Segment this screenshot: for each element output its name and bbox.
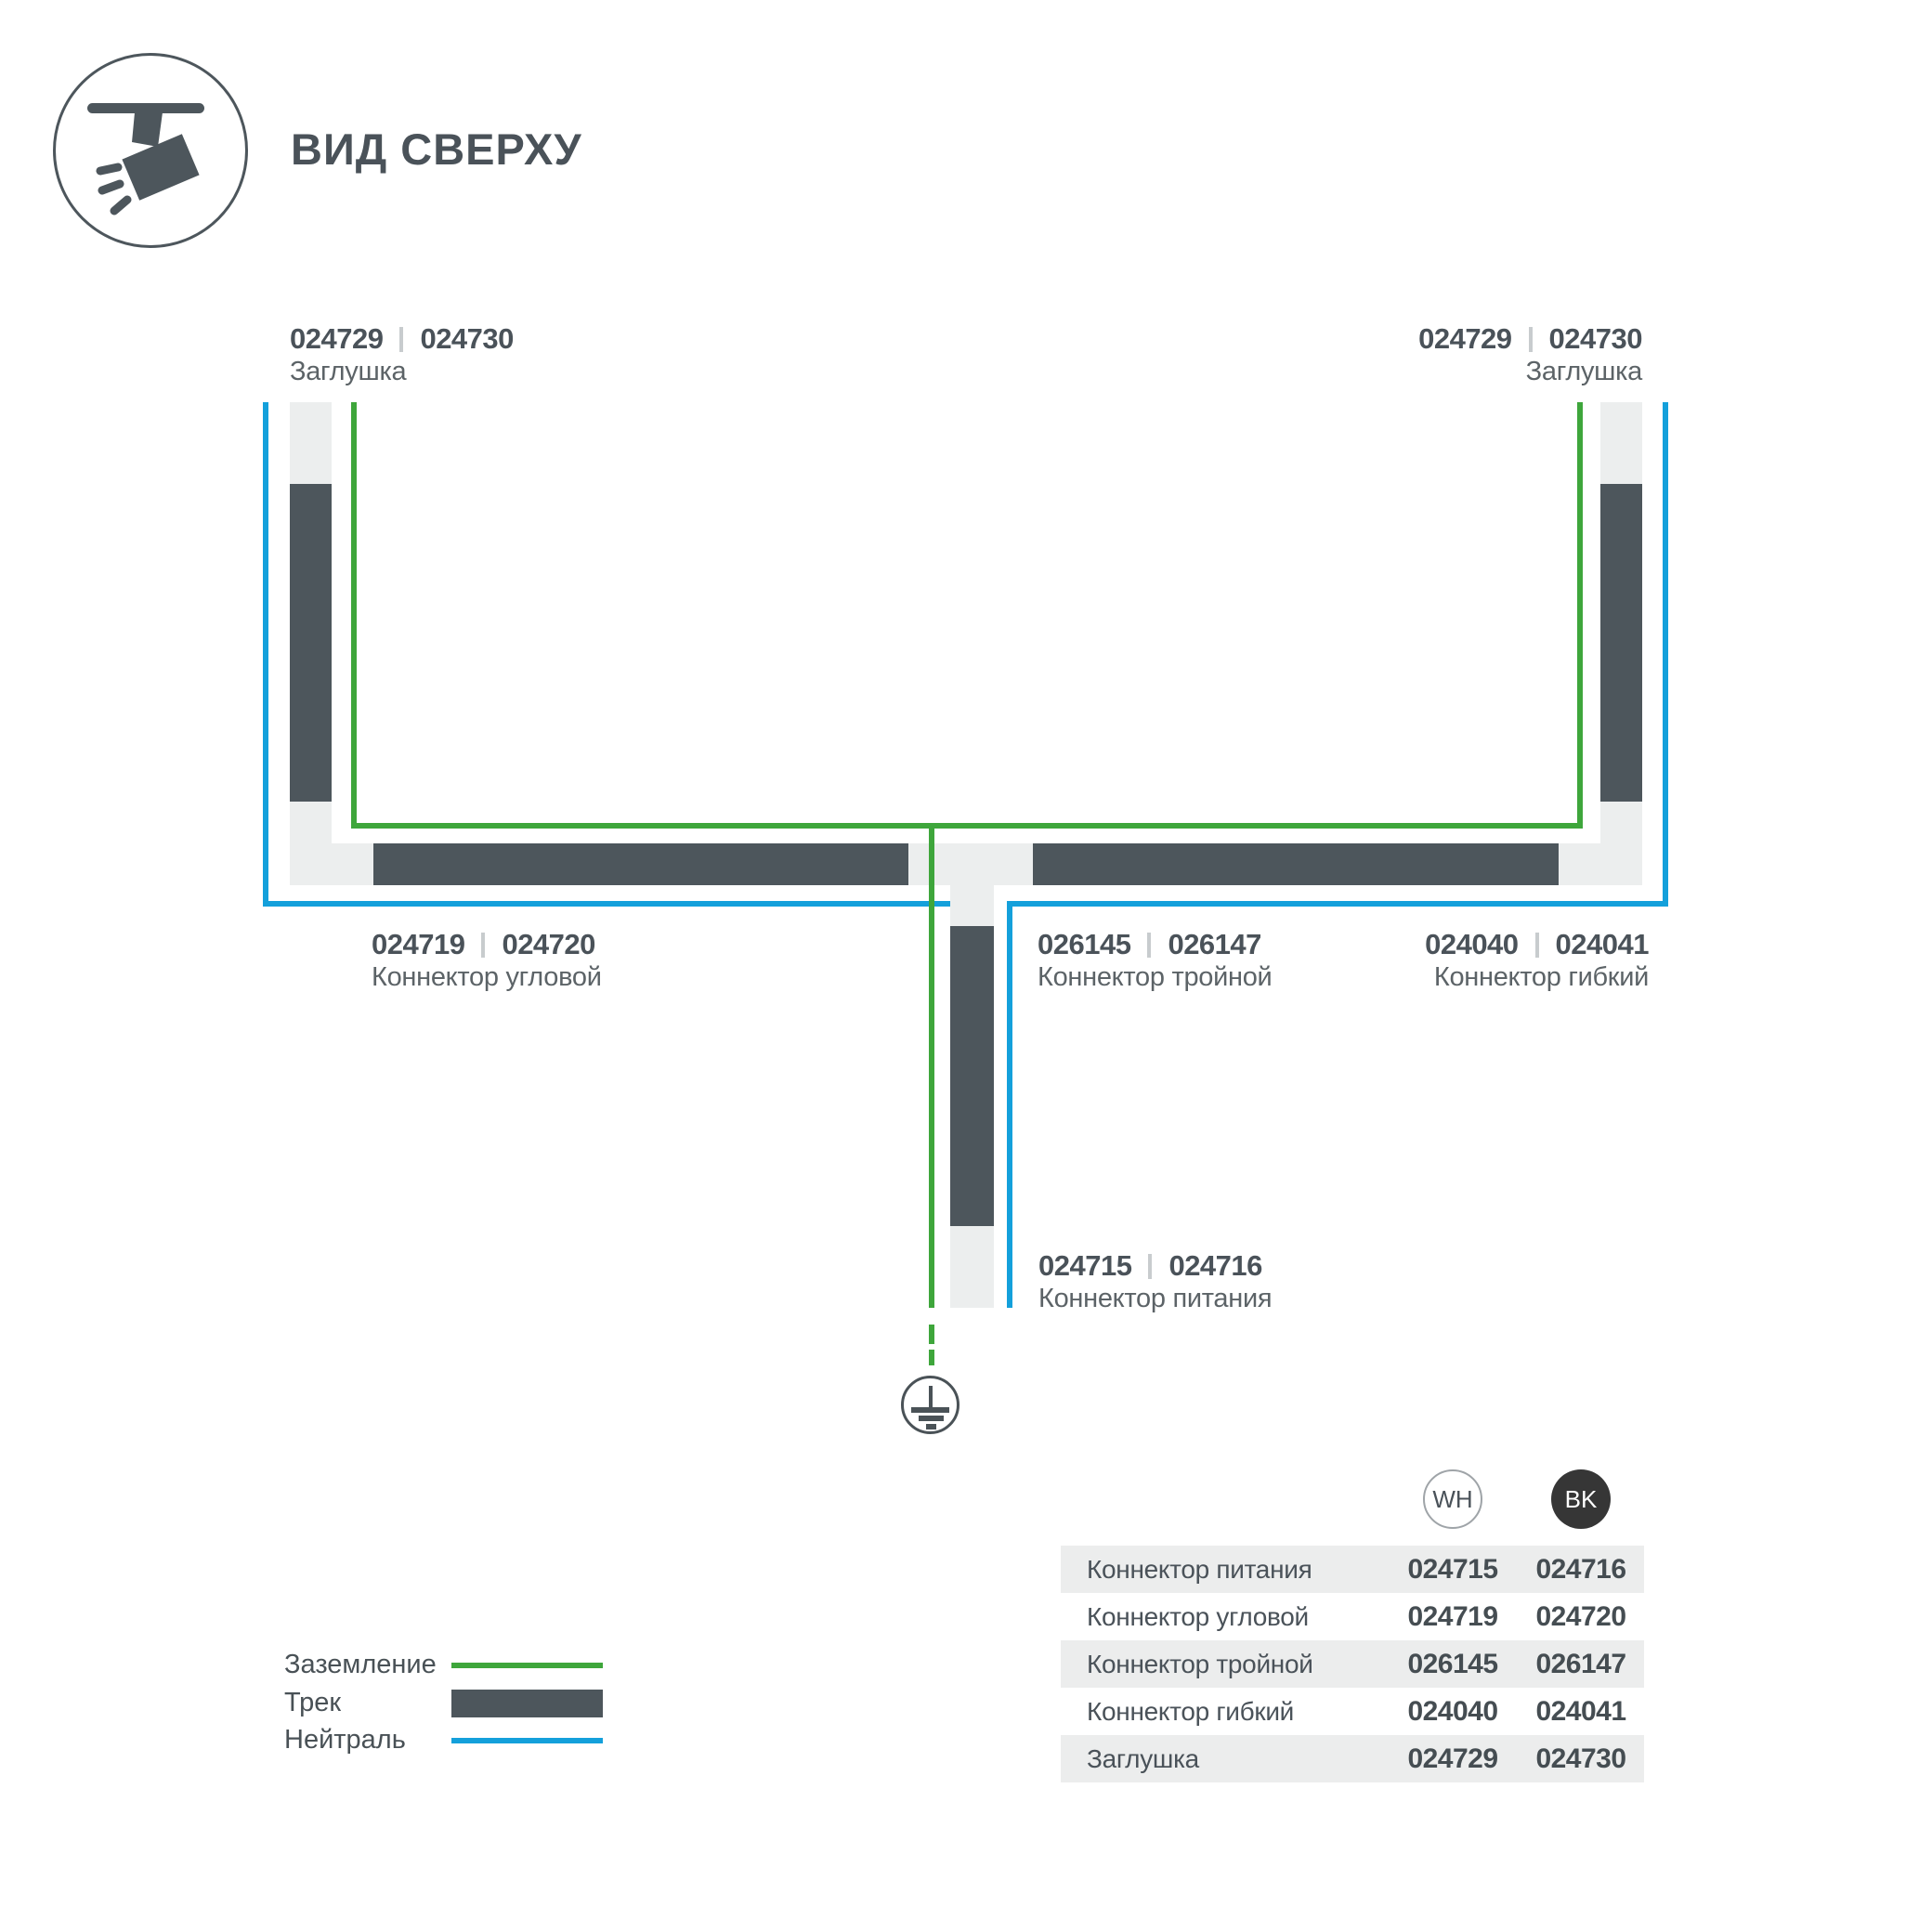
legend-swatch-track-bar (451, 1690, 603, 1717)
label-endcap-right: 024729 024730 Заглушка (1418, 323, 1642, 386)
label-endcap-right-codes: 024729 024730 (1418, 323, 1642, 355)
track-horizontal-right (1033, 843, 1559, 885)
label-flex-codes: 024040 024041 (1425, 929, 1649, 960)
code-separator (399, 327, 403, 352)
neutral-line-left-vertical (263, 402, 268, 907)
code-separator (481, 933, 485, 958)
ground-line-left-vertical (351, 402, 357, 829)
part-code: 024729 (1418, 323, 1511, 355)
code-separator (1148, 1254, 1152, 1279)
ground-line-stem-vertical (929, 823, 934, 1308)
part-name: Коннектор гибкий (1425, 962, 1649, 992)
part-code: 026147 (1168, 929, 1260, 960)
table-row: Заглушка 024729 024730 (1061, 1735, 1644, 1782)
ground-line-horizontal (351, 823, 1583, 829)
part-name: Коннектор питания (1038, 1284, 1272, 1313)
track-endcap-left (290, 402, 332, 484)
table-row-bk-code: 024730 (1516, 1735, 1646, 1782)
label-flex-connector: 024040 024041 Коннектор гибкий (1425, 929, 1649, 992)
part-code: 024730 (420, 323, 513, 355)
part-code: 024716 (1168, 1250, 1261, 1282)
table-row: Коннектор гибкий 024040 024041 (1061, 1688, 1644, 1735)
table-row-name: Заглушка (1087, 1735, 1199, 1782)
part-code: 024720 (502, 929, 594, 960)
label-corner-codes: 024719 024720 (372, 929, 602, 960)
corner-connector-right-horizontal (1559, 843, 1642, 885)
ground-line-right-vertical (1577, 402, 1583, 829)
table-row-bk-code: 024716 (1516, 1546, 1646, 1593)
neutral-line-right-vertical (1663, 402, 1668, 907)
legend-label-ground: Заземление (284, 1649, 437, 1680)
parts-table: Коннектор питания 024715 024716 Коннекто… (1061, 1546, 1644, 1782)
page-title: ВИД СВЕРХУ (291, 124, 582, 175)
label-power-codes: 024715 024716 (1038, 1250, 1272, 1282)
table-row-bk-code: 024720 (1516, 1593, 1646, 1640)
track-horizontal-left (373, 843, 908, 885)
table-row-name: Коннектор угловой (1087, 1593, 1309, 1640)
power-connector-cap (950, 1226, 994, 1308)
part-name: Заглушка (1418, 357, 1642, 386)
corner-connector-left-vertical (290, 802, 332, 843)
track-stem-vertical (950, 926, 994, 1226)
table-row: Коннектор тройной 026145 026147 (1061, 1640, 1644, 1688)
track-left-vertical (290, 484, 332, 802)
triple-connector-body (908, 843, 1033, 885)
ground-line-dash-2 (929, 1350, 934, 1365)
table-row-wh-code: 024715 (1388, 1546, 1518, 1593)
triple-connector-stem (950, 885, 994, 926)
part-code: 024729 (290, 323, 383, 355)
earth-ground-bar-3 (926, 1424, 936, 1429)
part-name: Коннектор тройной (1038, 962, 1272, 992)
corner-connector-right-vertical (1600, 802, 1642, 843)
table-row-name: Коннектор питания (1087, 1546, 1312, 1593)
part-code: 026145 (1038, 929, 1130, 960)
table-row-wh-code: 024040 (1388, 1688, 1518, 1735)
part-name: Коннектор угловой (372, 962, 602, 992)
table-row-bk-code: 026147 (1516, 1640, 1646, 1688)
track-right-vertical (1600, 484, 1642, 802)
page: ВИД СВЕРХУ 024729 024730 Заглушка 02 (0, 0, 1932, 1932)
legend-swatch-neutral-line (451, 1738, 603, 1743)
table-row-wh-code: 026145 (1388, 1640, 1518, 1688)
ground-line-dash-1 (929, 1325, 934, 1344)
part-name: Заглушка (290, 357, 514, 386)
part-code: 024041 (1556, 929, 1649, 960)
code-separator (1529, 327, 1533, 352)
legend-label-neutral: Нейтраль (284, 1724, 406, 1756)
table-row-name: Коннектор гибкий (1087, 1688, 1294, 1735)
spotlight-icon (53, 53, 248, 248)
code-separator (1147, 933, 1151, 958)
label-endcap-left: 024729 024730 Заглушка (290, 323, 514, 386)
corner-connector-left-horizontal (290, 843, 373, 885)
earth-ground-bar-1 (911, 1407, 949, 1413)
label-endcap-left-codes: 024729 024730 (290, 323, 514, 355)
table-row-wh-code: 024729 (1388, 1735, 1518, 1782)
color-badge-wh-label: WH (1432, 1485, 1472, 1514)
part-code: 024719 (372, 929, 464, 960)
legend-swatch-ground-line (451, 1663, 603, 1668)
table-row-name: Коннектор тройной (1087, 1640, 1313, 1688)
label-triple-connector: 026145 026147 Коннектор тройной (1038, 929, 1272, 992)
color-badge-wh: WH (1423, 1469, 1482, 1529)
code-separator (1535, 933, 1539, 958)
neutral-line-stem-vertical (1007, 901, 1012, 1308)
table-row-bk-code: 024041 (1516, 1688, 1646, 1735)
label-power-connector: 024715 024716 Коннектор питания (1038, 1250, 1272, 1313)
track-endcap-right (1600, 402, 1642, 484)
table-row: Коннектор питания 024715 024716 (1061, 1546, 1644, 1593)
table-row-wh-code: 024719 (1388, 1593, 1518, 1640)
part-code: 024040 (1425, 929, 1518, 960)
neutral-line-bottom-right (1007, 901, 1668, 907)
earth-ground-bar-2 (919, 1416, 944, 1421)
color-badge-bk-label: BK (1565, 1485, 1598, 1514)
label-corner-connector: 024719 024720 Коннектор угловой (372, 929, 602, 992)
color-badge-bk: BK (1551, 1469, 1611, 1529)
spotlight-icon-art (56, 56, 245, 245)
neutral-line-bottom-left (263, 901, 950, 907)
label-triple-codes: 026145 026147 (1038, 929, 1272, 960)
part-code: 024715 (1038, 1250, 1131, 1282)
legend-label-track: Трек (284, 1687, 341, 1718)
part-code: 024730 (1549, 323, 1642, 355)
table-row: Коннектор угловой 024719 024720 (1061, 1593, 1644, 1640)
